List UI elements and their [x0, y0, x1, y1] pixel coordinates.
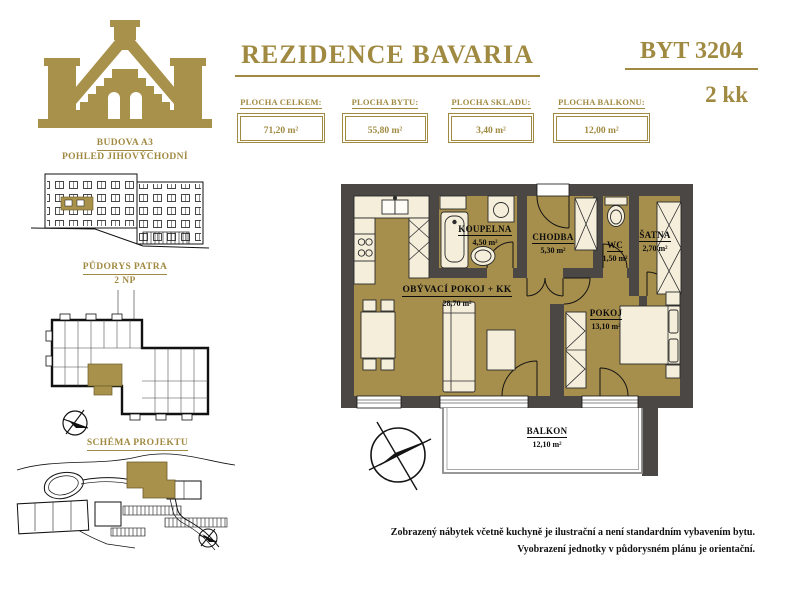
disclaimer-line1: Zobrazený nábytek včetně kuchyně je ilus…	[360, 524, 755, 541]
highlighted-building-site	[127, 462, 175, 498]
brewery-logo-icon	[38, 12, 212, 134]
stat-box: 71,20 m²	[237, 113, 325, 143]
disclaimer: Zobrazený nábytek včetně kuchyně je ilus…	[360, 524, 755, 558]
building-caption: BUDOVA A3 POHLED JIHOVÝCHODNÍ	[38, 137, 212, 163]
stat-value: 3,40 m²	[476, 126, 506, 136]
stat-plocha-bytu: PLOCHA BYTU: 55,80 m²	[342, 92, 428, 143]
stat-value: 71,20 m²	[264, 126, 299, 136]
room-label-obyvaci-pokoj: OBÝVACÍ POKOJ + KK 28,70 m²	[377, 282, 537, 309]
building-elevation-drawing	[25, 166, 215, 260]
page-title: REZIDENCE BAVARIA	[235, 40, 540, 77]
stat-value: 12,00 m²	[584, 126, 619, 136]
highlighted-unit-plan	[88, 364, 122, 395]
room-label-pokoj: POKOJ 13,10 m²	[578, 306, 634, 332]
floor-number: 2 NP	[114, 276, 135, 286]
stat-plocha-balkonu: PLOCHA BALKONU: 12,00 m²	[553, 92, 650, 143]
floorplan-label: PŮDORYS PATRA	[83, 261, 167, 275]
room-label-koupelna: KOUPELNA 4,50 m²	[449, 222, 521, 248]
stat-box: 55,80 m²	[342, 113, 428, 143]
site-plan-drawing	[15, 450, 237, 562]
floorplan-caption: PŮDORYS PATRA 2 NP	[38, 261, 212, 287]
floorplan-sheet: BUDOVA A3 POHLED JIHOVÝCHODNÍ PŮDORYS PA…	[0, 0, 800, 600]
stat-plocha-skladu: PLOCHA SKLADU: 3,40 m²	[448, 92, 534, 143]
building-label: BUDOVA A3	[97, 137, 153, 151]
unit-number: BYT 3204	[625, 38, 758, 70]
view-label: POHLED JIHOVÝCHODNÍ	[62, 152, 188, 162]
stat-value: 55,80 m²	[368, 126, 403, 136]
schema-label: SCHÉMA PROJEKTU	[87, 437, 188, 451]
schema-caption: SCHÉMA PROJEKTU	[60, 437, 215, 451]
stat-box: 12,00 m²	[553, 113, 650, 143]
disclaimer-line2: Vyobrazení jednotky v půdorysném plánu j…	[360, 541, 755, 558]
room-label-chodba: CHODBA 5,30 m²	[520, 230, 586, 256]
stat-label: PLOCHA SKLADU:	[451, 97, 530, 109]
compass-rose-icon	[369, 422, 431, 490]
stat-label: PLOCHA BALKONU:	[558, 97, 645, 109]
room-label-balkon: BALKON 12,10 m²	[497, 424, 597, 450]
compass-rose-small-icon	[63, 410, 88, 435]
stat-plocha-celkem: PLOCHA CELKEM: 71,20 m²	[237, 92, 325, 143]
stat-box: 3,40 m²	[448, 113, 534, 143]
storey-plan-drawing	[30, 286, 220, 438]
windows	[357, 396, 638, 408]
room-label-satna: ŠATNA 2,70 m²	[627, 228, 683, 254]
stat-label: PLOCHA BYTU:	[352, 97, 419, 109]
compass-rose-site-icon	[199, 529, 217, 547]
stat-label: PLOCHA CELKEM:	[240, 97, 321, 109]
apartment-floorplan: KOUPELNA 4,50 m² CHODBA 5,30 m² WC 1,50 …	[337, 172, 697, 517]
